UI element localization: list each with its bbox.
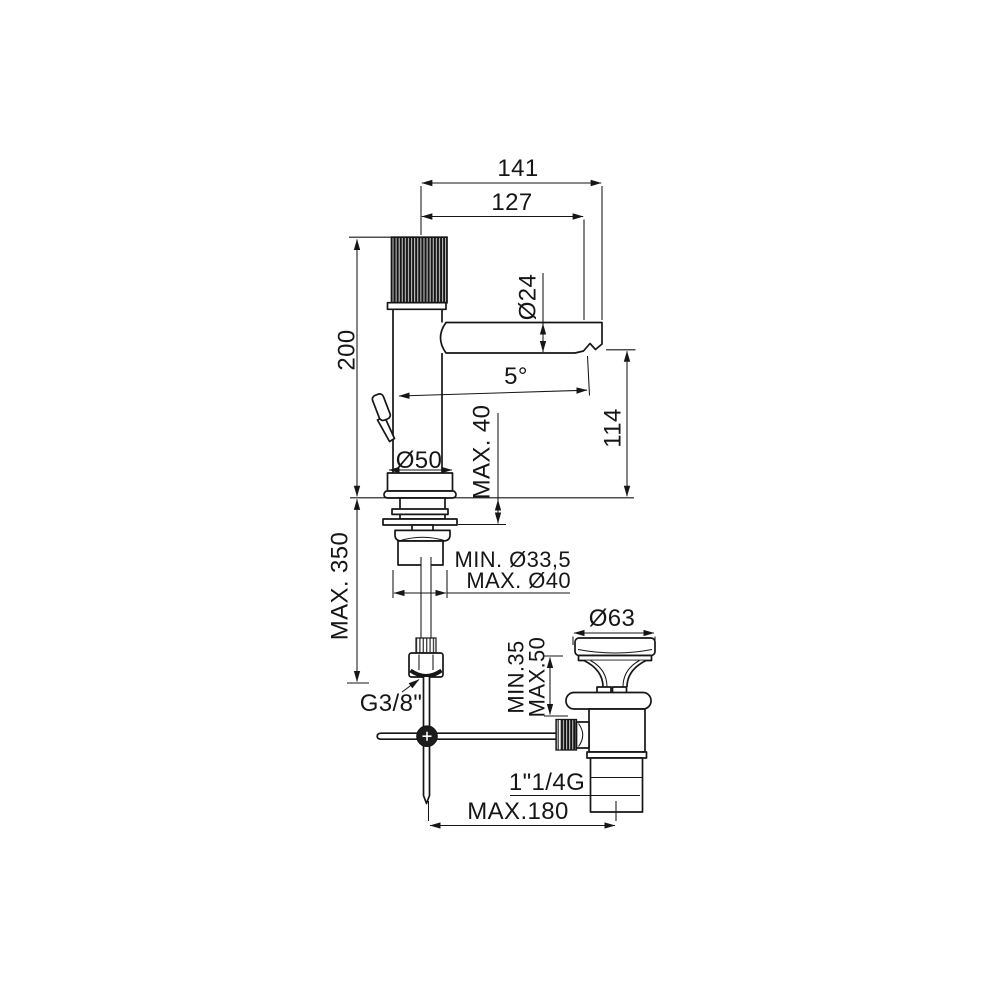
dim-label-o50: Ø50	[396, 447, 443, 474]
dim-label-hole-max: MAX. Ø40	[466, 568, 571, 593]
dim-label-127: 127	[491, 189, 532, 216]
washer-plate	[383, 519, 457, 525]
rod-pivot-ball	[417, 726, 437, 746]
dim-outlet-height: 114	[600, 350, 636, 497]
inlet-nut	[409, 653, 443, 677]
side-lever	[371, 393, 394, 442]
lever-knob	[371, 393, 391, 422]
faucet-technical-drawing: 141 127 Ø24 5° 114 200 MAX. 350 Ø50	[0, 0, 1000, 1000]
dim-label-o63: Ø63	[589, 605, 636, 632]
drain-flange	[566, 693, 651, 710]
jam-ring	[392, 509, 448, 514]
dim-label-5deg: 5°	[504, 363, 528, 390]
dim-label-max40: MAX. 40	[469, 405, 496, 500]
supply-pipe	[409, 557, 443, 677]
base-flange	[384, 473, 456, 498]
dim-label-max350: MAX. 350	[327, 532, 354, 641]
technical-drawing-canvas: 141 127 Ø24 5° 114 200 MAX. 350 Ø50	[0, 0, 1000, 1000]
dim-hose-length: MAX. 350	[327, 499, 370, 683]
aerator-extension-line	[588, 356, 590, 396]
dim-label-g38: G3/8"	[360, 690, 423, 717]
dim-label-max50: MAX.50	[525, 637, 550, 718]
dim-label-200: 200	[334, 329, 361, 370]
dim-rod-offset: MAX.180	[429, 798, 617, 826]
dim-label-114g: 1"1/4G	[509, 769, 585, 796]
dim-reach-tip: 141	[421, 155, 602, 320]
dim-label-max180: MAX.180	[467, 798, 569, 825]
lock-nut	[395, 530, 450, 541]
dim-label-o24: Ø24	[515, 274, 542, 321]
dim-deck-thickness: MAX. 40	[458, 405, 506, 525]
drain-step-ring	[587, 752, 647, 758]
faucet-handle-knurled	[388, 237, 448, 309]
horizontal-rod	[377, 733, 557, 739]
dim-label-141: 141	[497, 155, 538, 182]
compression-olive	[416, 638, 436, 653]
mounting-hardware	[383, 498, 457, 565]
dim-inlet-thread: G3/8"	[360, 680, 423, 718]
drain-body	[589, 709, 645, 752]
drain-funnel	[584, 661, 646, 688]
dim-body-height: 200	[334, 237, 392, 496]
dim-waste-clamp: MIN.35 MAX.50	[504, 637, 569, 718]
rod-connector	[556, 720, 589, 751]
dim-label-114: 114	[600, 408, 627, 447]
drain-cap	[575, 638, 655, 661]
